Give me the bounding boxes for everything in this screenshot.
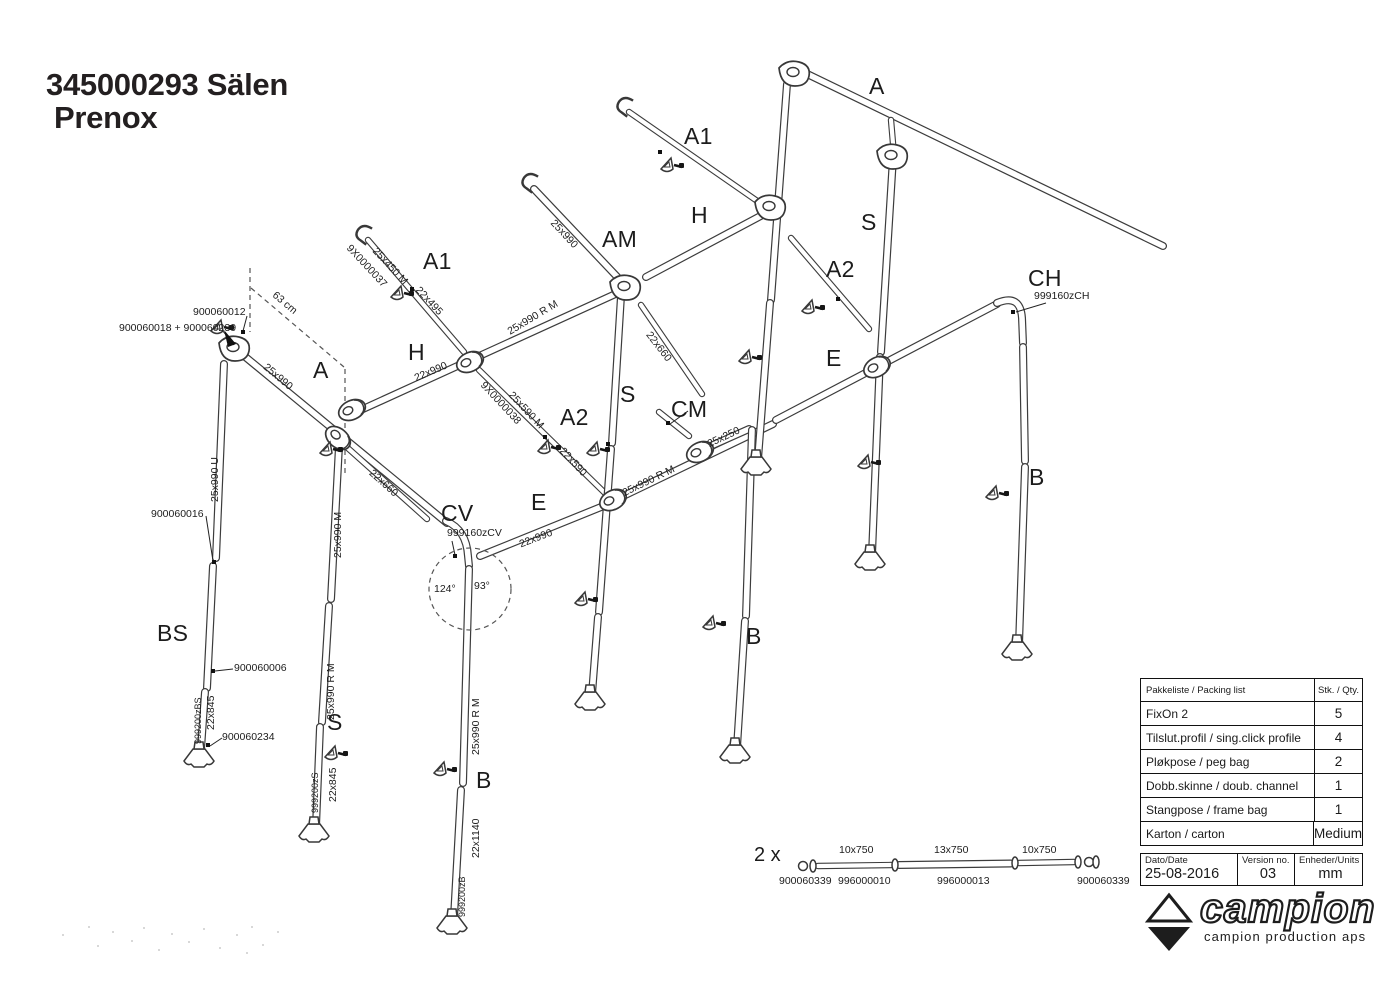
item-qty: 1 xyxy=(1315,798,1362,821)
item-label: FixOn 2 xyxy=(1141,702,1315,725)
item-qty: 4 xyxy=(1315,726,1362,749)
table-row: FixOn 2 5 xyxy=(1141,701,1362,725)
item-label: Dobb.skinne / doub. channel xyxy=(1141,774,1315,797)
units-cell: Enheder/Units mm xyxy=(1295,854,1362,885)
campion-logo: campion campion production aps xyxy=(1144,890,1376,954)
item-label: Tilslut.profil / sing.click profile xyxy=(1141,726,1315,749)
date-value: 25-08-2016 xyxy=(1145,866,1237,882)
table-header-row: Pakkeliste / Packing list Stk. / Qty. xyxy=(1141,679,1362,701)
packing-list-table: Pakkeliste / Packing list Stk. / Qty. Fi… xyxy=(1140,678,1363,846)
version-cell: Version no. 03 xyxy=(1238,854,1295,885)
version-label: Version no. xyxy=(1242,855,1294,866)
item-qty: 1 xyxy=(1315,774,1362,797)
item-qty: Medium xyxy=(1314,822,1362,845)
qty-header: Stk. / Qty. xyxy=(1315,679,1362,701)
version-value: 03 xyxy=(1242,866,1294,882)
item-label: Pløkpose / peg bag xyxy=(1141,750,1315,773)
packing-list-header: Pakkeliste / Packing list xyxy=(1141,679,1315,701)
date-label: Dato/Date xyxy=(1145,855,1237,866)
table-row: Dobb.skinne / doub. channel 1 xyxy=(1141,773,1362,797)
item-label: Karton / carton xyxy=(1141,822,1314,845)
assembly-drawing-page: 345000293 Sälen Prenox xyxy=(0,0,1400,989)
units-value: mm xyxy=(1299,866,1362,882)
brand-tagline: campion production aps xyxy=(1204,929,1376,944)
table-row: Stangpose / frame bag 1 xyxy=(1141,797,1362,821)
item-label: Stangpose / frame bag xyxy=(1141,798,1315,821)
table-row: Tilslut.profil / sing.click profile 4 xyxy=(1141,725,1362,749)
brand-wordmark: campion xyxy=(1200,890,1376,927)
drawing-number: 345000293 Sälen xyxy=(46,68,288,101)
table-row: Karton / carton Medium xyxy=(1141,821,1362,845)
drawing-model: Prenox xyxy=(54,101,288,134)
units-label: Enheder/Units xyxy=(1299,855,1362,866)
scan-noise xyxy=(62,926,279,954)
drawing-info-table: Dato/Date 25-08-2016 Version no. 03 Enhe… xyxy=(1140,853,1363,886)
date-cell: Dato/Date 25-08-2016 xyxy=(1141,854,1238,885)
drawing-title: 345000293 Sälen Prenox xyxy=(46,68,288,134)
campion-logo-mark-icon xyxy=(1144,892,1194,954)
table-row: Pløkpose / peg bag 2 xyxy=(1141,749,1362,773)
item-qty: 5 xyxy=(1315,702,1362,725)
item-qty: 2 xyxy=(1315,750,1362,773)
